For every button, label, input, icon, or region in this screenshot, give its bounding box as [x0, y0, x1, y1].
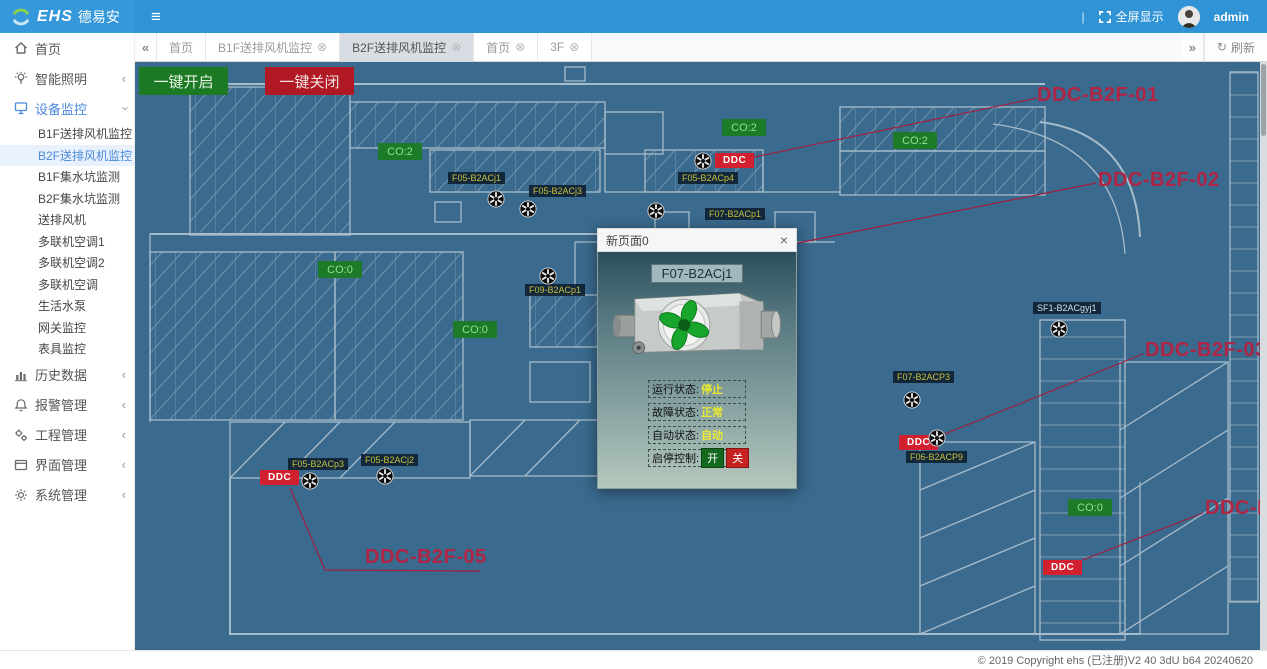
- sidebar-item-lighting[interactable]: 智能照明‹: [0, 63, 134, 93]
- tab-bar-right: » ↻ 刷新: [1182, 33, 1267, 61]
- sidebar-item-label: 界面管理: [35, 455, 115, 474]
- sidebar-item-home[interactable]: 首页: [0, 33, 134, 63]
- tab-b1f-fan[interactable]: B1F送排风机监控⊗: [206, 33, 340, 61]
- device-status-row: 运行状态:停止: [648, 380, 746, 398]
- device-tag-label: F06-B2ACP9: [906, 451, 967, 463]
- chevron-left-icon: ‹: [122, 457, 126, 472]
- alarm-icon: [14, 398, 28, 412]
- tab-bar: « 首页B1F送排风机监控⊗B2F送排风机监控⊗首页⊗3F⊗ » ↻ 刷新: [135, 33, 1267, 62]
- device-status-row: 自动状态:自动: [648, 426, 746, 444]
- chevron-left-icon: ‹: [122, 487, 126, 502]
- fan-icon[interactable]: [1050, 320, 1068, 338]
- device-name-label: F07-B2ACj1: [651, 264, 744, 283]
- dialog-close-icon[interactable]: ×: [780, 233, 788, 247]
- floor-plan-canvas: 一键开启 一键关闭 新页面0 × F07-B2ACj1: [135, 62, 1260, 650]
- footer: © 2019 Copyright ehs (已注册)V2 40 3dU b64 …: [0, 650, 1267, 669]
- bulb-icon: [14, 71, 28, 85]
- fan-icon[interactable]: [539, 267, 557, 285]
- device-tag-label: F07-B2ACP3: [893, 371, 954, 383]
- sidebar-item-supply-exhaust-fan[interactable]: 送排风机: [0, 209, 134, 231]
- ddc-callout-label: DDC-B2F-03: [1145, 339, 1260, 362]
- tab-close-icon[interactable]: ⊗: [569, 40, 579, 54]
- start-stop-control-row: 启停控制: 开 关: [648, 449, 746, 467]
- window-icon: [14, 458, 28, 472]
- tabs-scroll-right-button[interactable]: »: [1182, 33, 1204, 61]
- home-icon: [14, 41, 28, 55]
- status-value: 停止: [701, 381, 723, 397]
- fan-icon[interactable]: [903, 391, 921, 409]
- ddc-callout-label: DDC-B2F-04: [1205, 497, 1260, 520]
- status-value: 自动: [701, 427, 723, 443]
- app-logo: EHS 德易安: [0, 0, 135, 33]
- co-sensor-badge: CO:2: [722, 119, 766, 136]
- fan-icon[interactable]: [928, 429, 946, 447]
- co-sensor-badge: CO:2: [378, 143, 422, 160]
- chevron-down-icon: ‹: [116, 106, 131, 110]
- ddc-controller-badge[interactable]: DDC: [1043, 560, 1082, 575]
- tab-label: 3F: [550, 40, 564, 54]
- chevron-left-icon: ‹: [122, 71, 126, 86]
- fan-icon[interactable]: [519, 200, 537, 218]
- chevron-left-icon: ‹: [122, 397, 126, 412]
- refresh-button[interactable]: ↻ 刷新: [1204, 33, 1267, 61]
- chart-icon: [14, 368, 28, 382]
- device-tag-label: F09-B2ACp1: [525, 284, 585, 296]
- username-label[interactable]: admin: [1214, 10, 1249, 24]
- status-label: 自动状态:: [652, 427, 699, 443]
- co-sensor-badge: CO:2: [893, 132, 937, 149]
- avatar-icon: [1178, 6, 1200, 28]
- tools-icon: [14, 428, 28, 442]
- device-tag-label: F05-B2ACj2: [361, 454, 418, 466]
- sidebar-item-label: 工程管理: [35, 425, 115, 444]
- close-all-button[interactable]: 一键关闭: [265, 67, 354, 95]
- sidebar-item-label: 报警管理: [35, 395, 115, 414]
- sidebar-item-b1f-sump-monitor[interactable]: B1F集水坑监测: [0, 166, 134, 188]
- fan-icon[interactable]: [647, 202, 665, 220]
- open-all-button[interactable]: 一键开启: [139, 67, 228, 95]
- status-label: 故障状态:: [652, 404, 699, 420]
- tab-close-icon[interactable]: ⊗: [515, 40, 525, 54]
- top-bar: EHS 德易安 ≡ | 全屏显示 admin: [0, 0, 1267, 33]
- sidebar-item-b1f-fan-monitor[interactable]: B1F送排风机监控: [0, 123, 134, 145]
- tab-label: B2F送排风机监控: [352, 39, 446, 56]
- sidebar-nav: 首页智能照明‹设备监控‹B1F送排风机监控B2F送排风机监控B1F集水坑监测B2…: [0, 33, 135, 650]
- ddc-callout-label: DDC-B2F-05: [365, 546, 487, 569]
- ddc-callout-label: DDC-B2F-01: [1037, 84, 1159, 107]
- fan-off-button[interactable]: 关: [726, 448, 749, 468]
- status-label: 运行状态:: [652, 381, 699, 397]
- sidebar-item-label: 智能照明: [35, 69, 115, 88]
- tab-3f[interactable]: 3F⊗: [538, 33, 592, 61]
- chevron-left-icon: ‹: [122, 367, 126, 382]
- device-tag-label: F05-B2ACj3: [529, 185, 586, 197]
- tab-label: 首页: [486, 39, 510, 56]
- tab-close-icon[interactable]: ⊗: [451, 40, 461, 54]
- chevron-left-icon: ‹: [122, 427, 126, 442]
- ddc-controller-badge[interactable]: DDC: [715, 153, 754, 168]
- sidebar-item-label: 系统管理: [35, 485, 115, 504]
- tab-close-icon[interactable]: ⊗: [317, 40, 327, 54]
- fan-icon[interactable]: [301, 472, 319, 490]
- refresh-icon: ↻: [1217, 40, 1227, 54]
- logo-text: EHS: [37, 8, 73, 26]
- fullscreen-button[interactable]: 全屏显示: [1099, 8, 1164, 25]
- sidebar-item-engineering-mgmt[interactable]: 工程管理‹: [0, 420, 134, 450]
- device-status-row: 故障状态:正常: [648, 403, 746, 421]
- logo-brand-text: 德易安: [78, 7, 120, 27]
- fan-on-button[interactable]: 开: [701, 448, 724, 468]
- control-label: 启停控制:: [652, 450, 699, 466]
- fan-icon[interactable]: [694, 152, 712, 170]
- fan-unit-image: [613, 285, 781, 370]
- vertical-scrollbar[interactable]: [1260, 62, 1267, 650]
- status-value: 正常: [701, 404, 723, 420]
- scrollbar-thumb[interactable]: [1261, 64, 1266, 136]
- sidebar-toggle-icon[interactable]: ≡: [151, 8, 161, 25]
- tab-label: B1F送排风机监控: [218, 39, 312, 56]
- sidebar-item-b2f-sump-monitor[interactable]: B2F集水坑监测: [0, 188, 134, 210]
- dialog-title-bar[interactable]: 新页面0 ×: [597, 228, 797, 252]
- sidebar-item-b2f-fan-monitor[interactable]: B2F送排风机监控: [0, 145, 134, 167]
- tab-home-2[interactable]: 首页⊗: [474, 33, 538, 61]
- fullscreen-icon: [1099, 11, 1111, 23]
- device-tag-label: F07-B2ACp1: [705, 208, 765, 220]
- user-avatar[interactable]: [1178, 6, 1200, 28]
- sidebar-item-system-mgmt[interactable]: 系统管理‹: [0, 480, 134, 510]
- device-tag-label: SF1-B2ACgyj1: [1033, 302, 1101, 314]
- device-tag-label: F05-B2ACj1: [448, 172, 505, 184]
- tab-label: 首页: [169, 39, 193, 56]
- sidebar-item-vrf-ac[interactable]: 多联机空调: [0, 274, 134, 296]
- sidebar-item-gateway-monitor[interactable]: 网关监控: [0, 317, 134, 339]
- sidebar-item-label: 设备监控: [35, 99, 115, 118]
- refresh-label: 刷新: [1231, 39, 1255, 56]
- tabs-scroll-left-button[interactable]: «: [135, 33, 157, 61]
- gear-icon: [14, 488, 28, 502]
- sidebar-item-label: 历史数据: [35, 365, 115, 384]
- co-sensor-badge: CO:0: [453, 321, 497, 338]
- topbar-separator: |: [1082, 10, 1085, 24]
- sidebar-submenu-device-monitor: B1F送排风机监控B2F送排风机监控B1F集水坑监测B2F集水坑监测送排风机多联…: [0, 123, 134, 360]
- tab-home-1[interactable]: 首页: [157, 33, 206, 61]
- monitor-icon: [14, 101, 28, 115]
- dialog-title: 新页面0: [606, 232, 780, 249]
- ddc-callout-label: DDC-B2F-02: [1098, 169, 1220, 192]
- sidebar-item-alarm-mgmt[interactable]: 报警管理‹: [0, 390, 134, 420]
- sidebar-item-interface-mgmt[interactable]: 界面管理‹: [0, 450, 134, 480]
- ddc-controller-badge[interactable]: DDC: [260, 470, 299, 485]
- sidebar-item-vrf-ac-1[interactable]: 多联机空调1: [0, 231, 134, 253]
- sidebar-item-history-data[interactable]: 历史数据‹: [0, 360, 134, 390]
- device-tag-label: F05-B2ACp3: [288, 458, 348, 470]
- sidebar-item-meter-monitor[interactable]: 表具监控: [0, 338, 134, 360]
- sidebar-item-vrf-ac-2[interactable]: 多联机空调2: [0, 252, 134, 274]
- device-dialog: 新页面0 × F07-B2ACj1: [597, 228, 797, 489]
- copyright-text: © 2019 Copyright ehs (已注册)V2 40 3dU b64 …: [978, 652, 1253, 668]
- co-sensor-badge: CO:0: [1068, 499, 1112, 516]
- sidebar-item-device-monitor[interactable]: 设备监控‹: [0, 93, 134, 123]
- co-sensor-badge: CO:0: [318, 261, 362, 278]
- sidebar-item-domestic-pump[interactable]: 生活水泵: [0, 295, 134, 317]
- dialog-body: F07-B2ACj1: [597, 252, 797, 489]
- fullscreen-label: 全屏显示: [1116, 8, 1164, 25]
- device-tag-label: F05-B2ACp4: [678, 172, 738, 184]
- tab-b2f-fan[interactable]: B2F送排风机监控⊗: [340, 33, 474, 61]
- fan-icon[interactable]: [376, 467, 394, 485]
- logo-ring-icon: [10, 6, 32, 28]
- top-bar-right: | 全屏显示 admin: [1082, 6, 1267, 28]
- fan-icon[interactable]: [487, 190, 505, 208]
- sidebar-item-label: 首页: [35, 39, 126, 58]
